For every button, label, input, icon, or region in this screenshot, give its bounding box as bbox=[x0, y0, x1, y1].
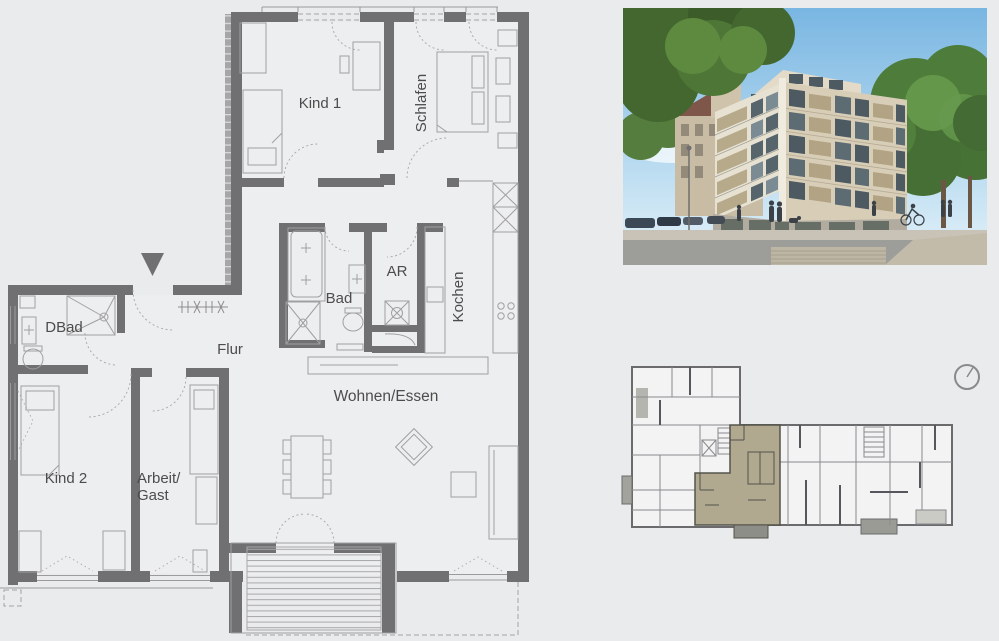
north-indicator-icon bbox=[955, 365, 979, 389]
label-kind2: Kind 2 bbox=[45, 470, 88, 487]
brochure-page: Kind 1 Schlafen Bad AR Kochen DBad Flur … bbox=[0, 0, 999, 641]
entrance-marker-icon bbox=[141, 253, 164, 276]
label-ar: AR bbox=[387, 263, 408, 280]
photo-street bbox=[623, 230, 987, 265]
terrace bbox=[231, 543, 396, 633]
building-rendering-photo bbox=[623, 8, 987, 265]
label-flur: Flur bbox=[217, 341, 243, 358]
label-bad: Bad bbox=[326, 290, 353, 307]
label-dbad: DBad bbox=[45, 319, 83, 336]
site-key-plan bbox=[618, 350, 999, 555]
label-schlafen: Schlafen bbox=[413, 74, 430, 132]
label-arbeit-1: Arbeit/ bbox=[137, 470, 181, 487]
label-arbeit-2: Gast bbox=[137, 487, 170, 504]
label-wohnen: Wohnen/Essen bbox=[334, 388, 439, 405]
main-floor-plan: Kind 1 Schlafen Bad AR Kochen DBad Flur … bbox=[0, 0, 560, 641]
label-kochen: Kochen bbox=[450, 272, 467, 323]
label-kind1: Kind 1 bbox=[299, 95, 342, 112]
wall-hatch-strip bbox=[225, 14, 231, 290]
